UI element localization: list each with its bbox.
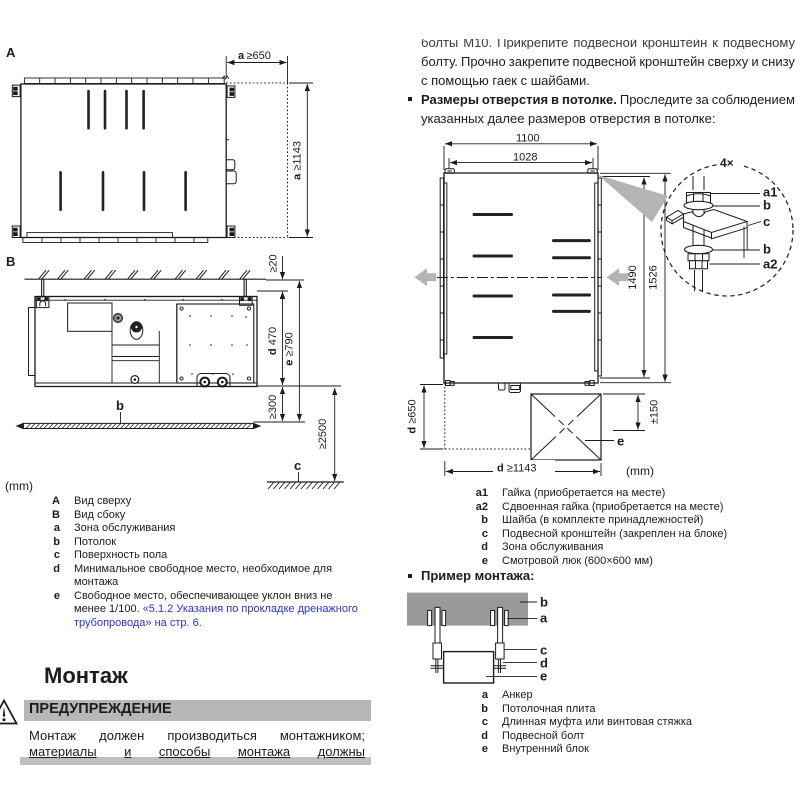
- svg-text:b: b: [763, 242, 771, 257]
- svg-text:d ≥1143: d ≥1143: [497, 463, 536, 475]
- svg-text:b: b: [540, 594, 548, 609]
- svg-text:e: e: [540, 669, 547, 684]
- svg-text:≥300: ≥300: [267, 395, 279, 419]
- svg-text:≥20: ≥20: [268, 254, 280, 272]
- svg-text:≥650: ≥650: [247, 50, 271, 62]
- svg-text:e: e: [617, 434, 624, 449]
- svg-text:c: c: [763, 214, 770, 229]
- svg-text:c: c: [294, 458, 301, 473]
- svg-text:e ≥790: e ≥790: [284, 332, 296, 366]
- svg-text:b: b: [116, 398, 124, 413]
- svg-text:1526: 1526: [648, 265, 660, 289]
- svg-text:a: a: [540, 611, 548, 626]
- svg-text:1028: 1028: [513, 151, 537, 163]
- svg-text:a ≥1143: a ≥1143: [292, 141, 304, 180]
- svg-text:1490: 1490: [627, 265, 639, 289]
- svg-text:A: A: [6, 45, 16, 60]
- svg-text:a2: a2: [763, 257, 777, 272]
- svg-text:d 470: d 470: [267, 327, 279, 355]
- svg-text:B: B: [6, 254, 15, 269]
- svg-text:1100: 1100: [516, 133, 540, 145]
- svg-text:d ≥650: d ≥650: [407, 399, 419, 433]
- svg-text:≥2500: ≥2500: [317, 419, 329, 450]
- svg-text:4×: 4×: [720, 156, 734, 170]
- svg-text:±150: ±150: [649, 400, 661, 424]
- svg-text:b: b: [763, 198, 771, 213]
- svg-text:a: a: [238, 50, 245, 62]
